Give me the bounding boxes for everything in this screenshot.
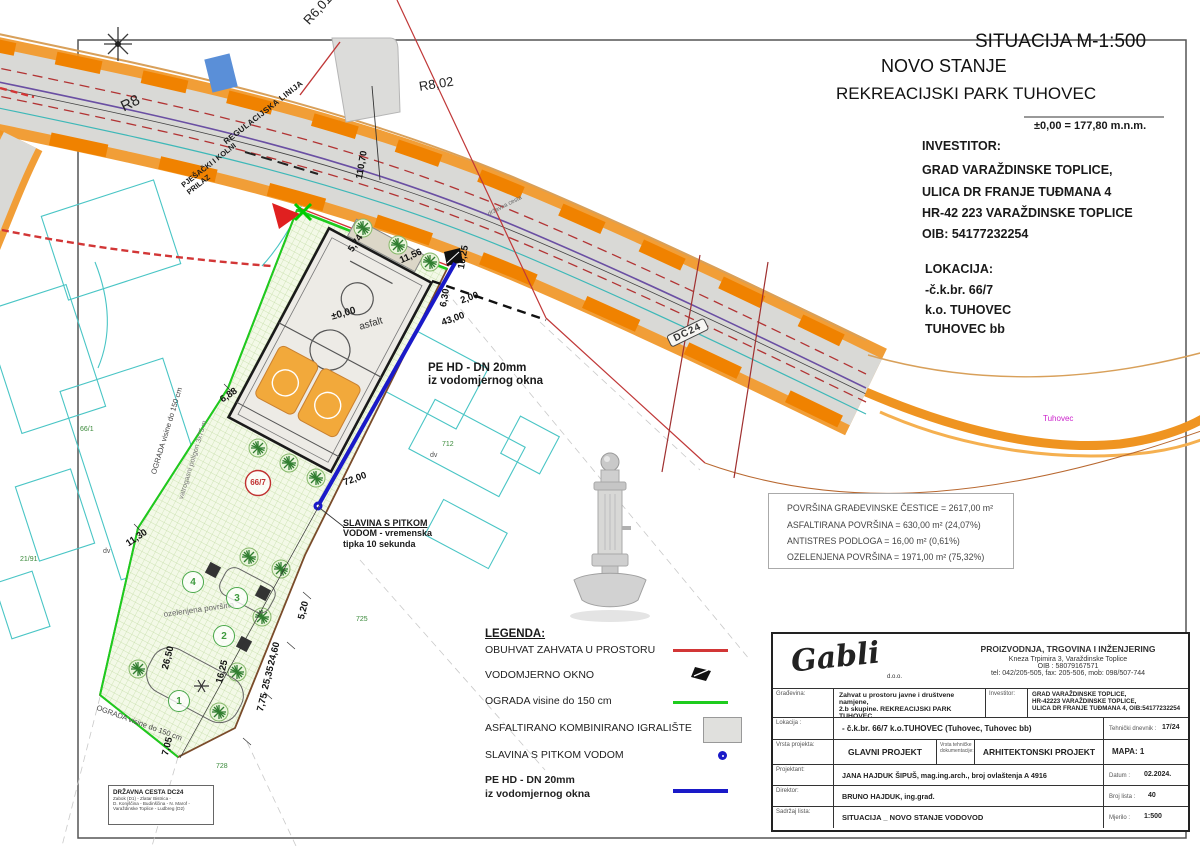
cell-sadrzaj-label: Sadržaj lista: [773, 806, 833, 828]
arh-value: ARHITEKTONSKI PROJEKT [975, 740, 1103, 757]
plan-subtitle-park: REKREACIJSKI PARK TUHOVEC [836, 84, 1096, 104]
area-summary-box: POVRŠINA GRAĐEVINSKE ČESTICE = 2617,00 m… [768, 493, 1014, 569]
direktor-value: BRUNO HAJDUK, ing.građ. [834, 786, 1103, 801]
location-line: TUHOVEC bb [925, 322, 1005, 336]
company-line: OIB : 58079167571 [953, 663, 1183, 670]
parcel-number: 725 [356, 616, 368, 623]
parcel-number: dv [103, 548, 110, 555]
investitor-line: HR-42223 VARAŽDINSKE TOPLICE, [1032, 698, 1188, 705]
label-slavina-line1: SLAVINA S PITKOM [343, 518, 432, 528]
area-line: OZELENJENA POVRŠINA = 1971,00 m² (75,32%… [787, 552, 984, 562]
cell-gradevina-label: Građevina: [773, 688, 833, 717]
investitor-line: GRAD VARAŽDINSKE TOPLICE, [1032, 691, 1188, 698]
company-line: tel: 042/205-505, fax: 205-506, mob: 098… [953, 670, 1183, 677]
parcel-66-7-label: 66/7 [244, 478, 272, 487]
cell-investitor: GRAD VARAŽDINSKE TOPLICE, HR-42223 VARAŽ… [1027, 688, 1188, 717]
row-label: Vrsta tehničke dokumentacije: [937, 740, 974, 754]
parcel-number: 21/91 [20, 556, 38, 563]
elevation-rule [1024, 116, 1164, 118]
legend-item-obuhvat: OBUHVAT ZAHVATA U PROSTORU [485, 644, 655, 656]
legend-title: LEGENDA: [485, 628, 545, 641]
cell-broj-lista: Broj lista : 40 [1103, 785, 1188, 806]
lokacija-value: - č.k.br. 66/7 k.o.TUHOVEC (Tuhovec, Tuh… [834, 718, 1103, 733]
company-line: Kneza Trpimira 3, Varaždinske Toplice [953, 656, 1183, 663]
cell-direktor-label: Direktor: [773, 785, 833, 806]
row-label: Investitor: [986, 689, 1027, 697]
broj-value: 40 [1148, 792, 1156, 799]
cell-tehnicki: Tehnički dnevnik : 17/24 [1103, 717, 1188, 739]
cell-mjerilo: Mjerilo : 1:500 [1103, 806, 1188, 828]
location-line: -č.k.br. 66/7 [925, 283, 993, 297]
company-logo-suffix: d.o.o. [887, 674, 902, 680]
zone-circle-1: 1 [168, 690, 190, 712]
title-block: Gabli d.o.o. PROIZVODNJA, TRGOVINA I INŽ… [771, 632, 1190, 832]
parcel-number: 712 [442, 441, 454, 448]
zone-circle-3: 3 [226, 587, 248, 609]
cell-lokacija-label: Lokacija : [773, 717, 833, 739]
investitor-line: ULICA DR FRANJE TUĐMANA 4, OIB:541772322… [1032, 705, 1188, 712]
company-logo: Gabli d.o.o. [791, 640, 931, 686]
cell-arh: ARHITEKTONSKI PROJEKT [974, 739, 1103, 764]
row-label: Građevina: [773, 689, 833, 697]
compass-star-icon [104, 27, 132, 61]
cell-vrsta-label: Vrsta projekta: [773, 739, 833, 764]
investor-line: ULICA DR FRANJE TUĐMANA 4 [922, 185, 1111, 199]
cell-direktor: BRUNO HAJDUK, ing.građ. [833, 785, 1103, 806]
cell-gradevina: Zahvat u prostoru javne i društvene namj… [833, 688, 985, 717]
label-pehd-line1: PE HD - DN 20mm [428, 362, 543, 375]
label-pehd-pipe: PE HD - DN 20mm iz vodomjernog okna [428, 362, 543, 388]
investor-line: OIB: 54177232254 [922, 227, 1028, 241]
zone-circle-4: 4 [182, 571, 204, 593]
parcel-number: dv [430, 452, 437, 459]
cell-projektant: JANA HAJDUK ŠIPUŠ, mag.ing.arch., broj o… [833, 764, 1103, 785]
cell-projektant-label: Projektant: [773, 764, 833, 785]
road-info-box: DRŽAVNA CESTA DC24 Zabok (D1) - Zlatar B… [108, 785, 214, 825]
plan-title: SITUACIJA M-1:500 [975, 31, 1146, 53]
legend-symbol-blue-line [673, 789, 728, 793]
legend-item-pehd2: iz vodomjernog okna [485, 788, 590, 800]
label-pehd-line2: iz vodomjernog okna [428, 375, 543, 388]
label-tuhovec: Tuhovec [1043, 414, 1073, 423]
cell-lokacija: - č.k.br. 66/7 k.o.TUHOVEC (Tuhovec, Tuh… [833, 717, 1103, 739]
gradevina-line1: Zahvat u prostoru javne i društvene namj… [839, 692, 985, 706]
cell-sadrzaj: SITUACIJA _ NOVO STANJE VODOVOD [833, 806, 1103, 828]
row-label: Tehnički dnevnik : [1106, 724, 1156, 732]
projektant-value: JANA HAJDUK ŠIPUŠ, mag.ing.arch., broj o… [834, 765, 1103, 780]
sadrzaj-value: SITUACIJA _ NOVO STANJE VODOVOD [834, 807, 1103, 822]
cell-vrsta-teh-label: Vrsta tehničke dokumentacije: [936, 739, 974, 764]
cell-datum: Datum : 02.2024. [1103, 764, 1188, 785]
label-slavina-line3: tipka 10 sekunda [343, 539, 432, 549]
area-line: ANTISTRES PODLOGA = 16,00 m² (0,61%) [787, 536, 960, 546]
row-label: Broj lista : [1106, 792, 1135, 800]
legend-item-pehd: PE HD - DN 20mm [485, 774, 575, 786]
cell-vrsta: GLAVNI PROJEKT [833, 739, 936, 764]
legend-item-igraliste: ASFALTIRANO KOMBINIRANO IGRALIŠTE [485, 722, 692, 734]
datum-value: 02.2024. [1144, 771, 1171, 778]
legend-symbol-gray-rect [703, 717, 742, 743]
area-line: POVRŠINA GRAĐEVINSKE ČESTICE = 2617,00 m… [787, 503, 993, 513]
company-info: PROIZVODNJA, TRGOVINA I INŽENJERING Knez… [953, 644, 1183, 677]
row-label: Datum : [1106, 771, 1130, 779]
row-label: Direktor: [773, 786, 833, 794]
road-info-title: DRŽAVNA CESTA DC24 [113, 789, 209, 796]
company-line: PROIZVODNJA, TRGOVINA I INŽENJERING [953, 644, 1183, 654]
row-label: Vrsta projekta: [773, 740, 833, 748]
row-label: Mjerilo : [1106, 813, 1130, 821]
vrsta-value: GLAVNI PROJEKT [834, 740, 936, 757]
area-line: ASFALTIRANA POVRŠINA = 630,00 m² (24,07%… [787, 520, 981, 530]
legend-symbol-green-line [673, 701, 728, 704]
investor-line: HR-42 223 VARAŽDINSKE TOPLICE [922, 206, 1133, 220]
parcel-number: 728 [216, 763, 228, 770]
zone-circle-2: 2 [213, 625, 235, 647]
fountain-photo [570, 453, 650, 622]
investor-heading: INVESTITOR: [922, 139, 1001, 153]
legend-symbol-blue-dot-center [722, 755, 724, 757]
site-plan-canvas: SITUACIJA M-1:500 NOVO STANJE REKREACIJS… [0, 0, 1200, 846]
row-label: Lokacija : [773, 718, 833, 726]
legend-item-okno: VODOMJERNO OKNO [485, 669, 594, 681]
legend-item-ograda: OGRADA visine do 150 cm [485, 695, 612, 707]
parcel-number: 66/1 [80, 426, 94, 433]
location-line: k.o. TUHOVEC [925, 303, 1011, 317]
road-info-line: Varaždinske Toplice - Ludbreg (D2) [113, 806, 209, 811]
location-heading: LOKACIJA: [925, 262, 993, 276]
company-logo-text: Gabli [789, 635, 881, 679]
investor-line: GRAD VARAŽDINSKE TOPLICE, [922, 163, 1113, 177]
elevation-datum: ±0,00 = 177,80 m.n.m. [1034, 120, 1146, 133]
legend-item-slavina: SLAVINA S PITKOM VODOM [485, 749, 624, 761]
row-label: Projektant: [773, 765, 833, 773]
row-label: Sadržaj lista: [773, 807, 833, 815]
mapa-value: MAPA: 1 [1104, 740, 1188, 756]
cell-investitor-label: Investitor: [985, 688, 1027, 717]
tehnicki-value: 17/24 [1162, 724, 1180, 731]
cell-mapa: MAPA: 1 [1103, 739, 1188, 764]
legend-symbol-okno-icon [690, 664, 714, 684]
label-slavina-line2: VODOM - vremenska [343, 528, 432, 538]
legend-symbol-red-line [673, 649, 728, 652]
label-slavina: SLAVINA S PITKOM VODOM - vremenska tipka… [343, 518, 432, 549]
plan-subtitle-state: NOVO STANJE [881, 56, 1007, 77]
mjerilo-value: 1:500 [1144, 813, 1162, 820]
